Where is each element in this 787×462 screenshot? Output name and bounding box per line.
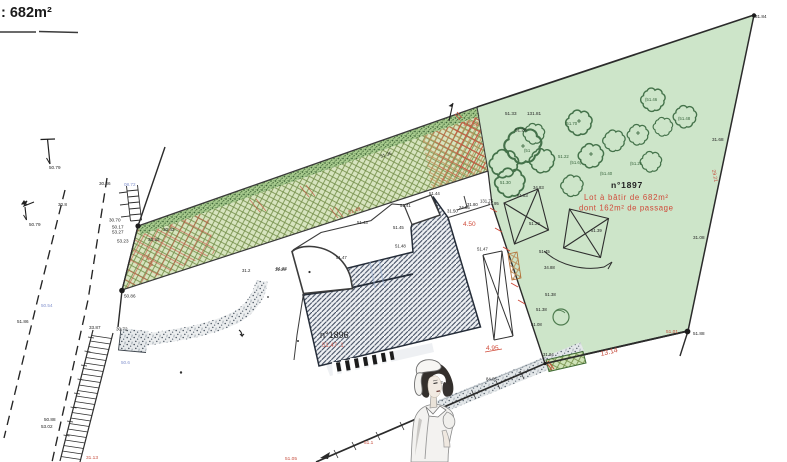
svg-text:51.45: 51.45: [393, 225, 404, 230]
svg-text:dont 162m² de passage: dont 162m² de passage: [579, 204, 674, 213]
svg-text:50.6: 50.6: [121, 360, 130, 365]
svg-text:51.41: 51.41: [400, 203, 411, 208]
svg-text:51.33: 51.33: [505, 111, 517, 116]
svg-text:51.1: 51.1: [364, 440, 374, 446]
svg-text:n°1897: n°1897: [611, 180, 643, 190]
svg-text:(51: (51: [524, 148, 531, 153]
svg-text:33.23: 33.23: [148, 237, 160, 242]
svg-text:31.84: 31.84: [755, 14, 767, 19]
svg-text:50.88: 50.88: [44, 417, 56, 422]
svg-text:50.79: 50.79: [49, 165, 61, 170]
svg-text:51.47 .1: 51.47 .1: [322, 343, 344, 349]
svg-text:31.80: 31.80: [467, 202, 478, 207]
svg-text:(51.70: (51.70: [565, 121, 578, 126]
svg-text:30.86: 30.86: [99, 181, 111, 186]
svg-text:30.72: 30.72: [116, 327, 128, 332]
svg-text:33.87: 33.87: [89, 325, 101, 330]
svg-text:51.48: 51.48: [395, 244, 406, 249]
svg-text:131.75: 131.75: [480, 199, 494, 204]
svg-text:51.22: 51.22: [558, 154, 569, 159]
svg-text:51.30: 51.30: [500, 180, 511, 185]
svg-text:(51.6): (51.6): [570, 160, 582, 165]
svg-text:31.2: 31.2: [242, 268, 251, 273]
svg-text:08.72: 08.72: [124, 182, 136, 187]
svg-text:51.05: 51.05: [285, 456, 297, 462]
svg-text:51.88: 51.88: [693, 331, 705, 336]
svg-text:131.52: 131.52: [463, 122, 479, 128]
svg-text:4.50: 4.50: [463, 221, 476, 228]
svg-text:(51.26: (51.26: [630, 161, 643, 166]
svg-text:51.01: 51.01: [666, 329, 678, 335]
svg-text:53.02: 53.02: [41, 424, 53, 429]
svg-text:51.86: 51.86: [17, 319, 29, 324]
svg-text:51.44: 51.44: [429, 191, 440, 196]
svg-text:51.38: 51.38: [536, 307, 547, 312]
svg-text:84.05: 84.05: [486, 377, 497, 382]
svg-text:30.42: 30.42: [163, 227, 175, 232]
svg-text:53.23: 53.23: [117, 239, 129, 244]
svg-text:31.50: 31.50: [447, 209, 458, 214]
svg-text:31.13: 31.13: [86, 455, 98, 461]
svg-text:(51.48: (51.48: [678, 116, 691, 121]
svg-text:51.47: 51.47: [477, 247, 488, 252]
svg-text:51.83: 51.83: [517, 193, 528, 198]
svg-text:34.88: 34.88: [544, 265, 555, 270]
svg-text:31.68: 31.68: [712, 137, 724, 142]
svg-text:34.83: 34.83: [533, 185, 544, 190]
svg-text:51.08: 51.08: [531, 322, 542, 327]
svg-text:51.45: 51.45: [539, 249, 550, 254]
svg-text:51.43: 51.43: [357, 220, 368, 225]
svg-text:131.81: 131.81: [527, 111, 541, 116]
svg-text:: 682m²: : 682m²: [1, 5, 52, 21]
svg-text:51.39: 51.39: [591, 228, 602, 233]
svg-text:31.08: 31.08: [693, 235, 705, 240]
svg-text:(51.46: (51.46: [645, 97, 658, 102]
svg-text:51.28: 51.28: [515, 128, 527, 133]
svg-text:53.27: 53.27: [112, 230, 124, 235]
svg-text:(51.40: (51.40: [600, 171, 613, 176]
svg-text:50.86: 50.86: [124, 294, 136, 299]
svg-text:50.54: 50.54: [41, 303, 53, 308]
svg-text:n°1896: n°1896: [320, 330, 349, 340]
svg-text:30.8: 30.8: [58, 202, 67, 207]
svg-text:51.38: 51.38: [545, 292, 556, 297]
svg-text:Lot à bâtir de 682m²: Lot à bâtir de 682m²: [584, 193, 669, 202]
svg-text:51.47: 51.47: [336, 255, 347, 260]
svg-text:31.29: 31.29: [275, 267, 286, 272]
svg-text:50.79: 50.79: [29, 222, 41, 227]
svg-text:31.94: 31.94: [543, 352, 554, 357]
svg-text:30.70: 30.70: [109, 218, 121, 223]
svg-text:51.29: 51.29: [529, 221, 540, 226]
